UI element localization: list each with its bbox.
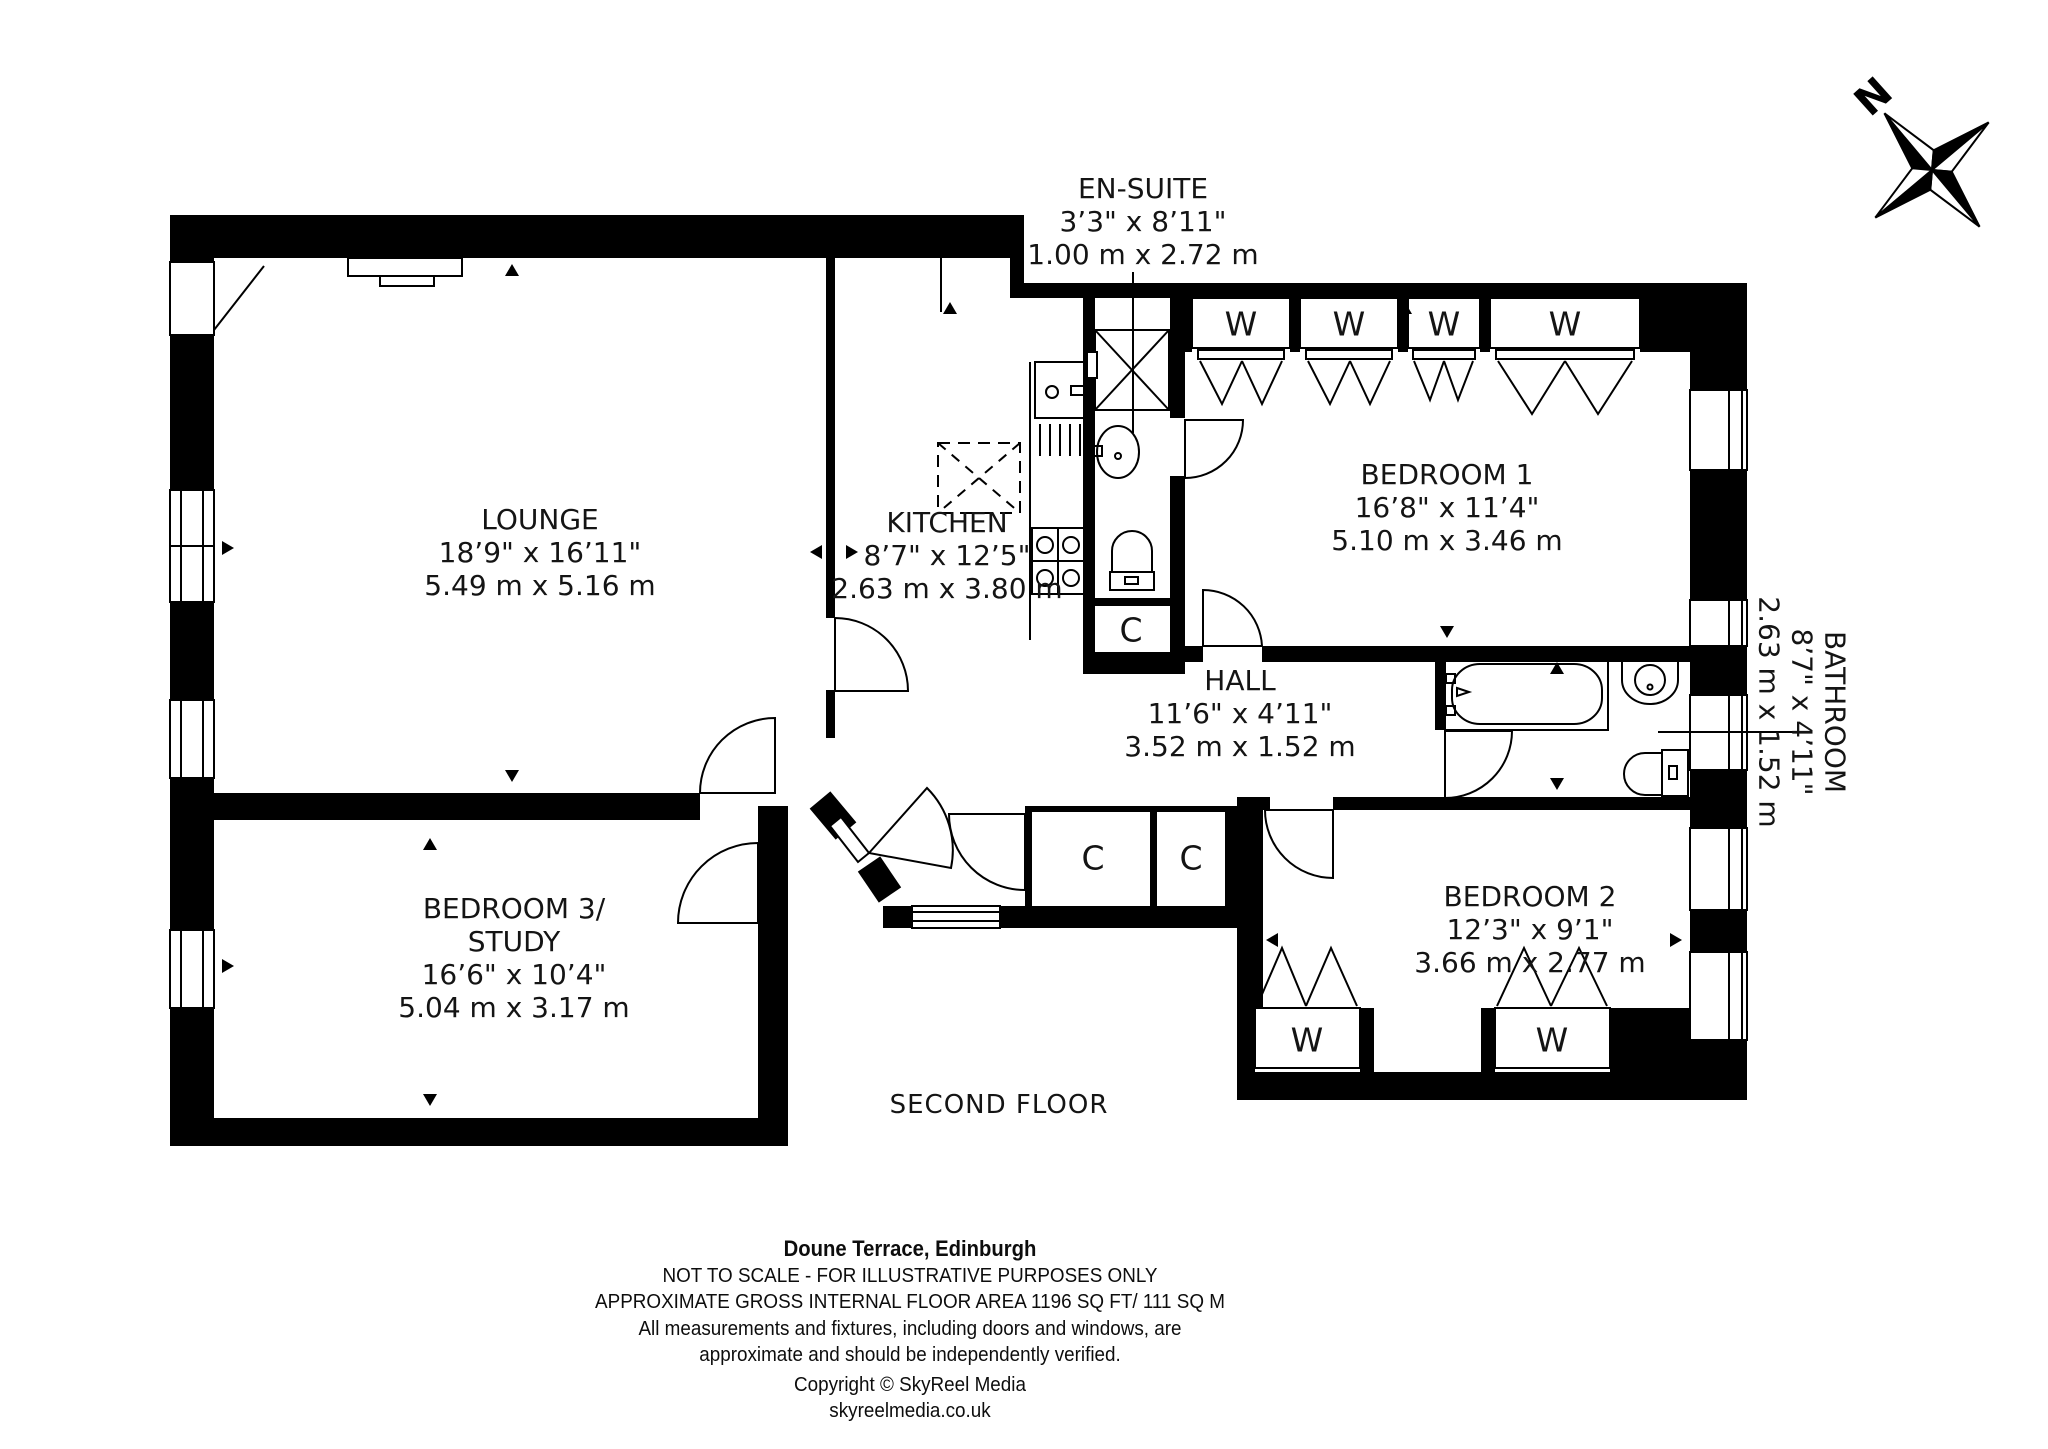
wardrobe-label-4: W xyxy=(1549,305,1582,344)
room-size-metric: 3.66 m x 2.77 m xyxy=(1414,946,1645,979)
wardrobe-label-5: W xyxy=(1291,1021,1324,1060)
room-size-metric: 5.10 m x 3.46 m xyxy=(1331,524,1562,557)
room-size-metric: 3.52 m x 1.52 m xyxy=(1124,730,1355,763)
room-size-imperial: 11’6" x 4’11" xyxy=(1124,697,1355,730)
room-size-imperial: 18’9" x 16’11" xyxy=(424,536,655,569)
website-link: skyreelmedia.co.uk xyxy=(595,1398,1225,1425)
ensuite-fixtures xyxy=(1087,330,1169,590)
room-size-metric: 5.04 m x 3.17 m xyxy=(398,991,629,1024)
room-size-metric: 5.49 m x 5.16 m xyxy=(424,569,655,602)
room-name: LOUNGE xyxy=(424,503,655,536)
footer-line: NOT TO SCALE - FOR ILLUSTRATIVE PURPOSES… xyxy=(595,1263,1225,1290)
room-name: EN-SUITE xyxy=(1027,172,1258,205)
room-label-ensuite: EN-SUITE 3’3" x 8’11" 1.00 m x 2.72 m xyxy=(1027,172,1258,271)
room-size-imperial: 16’8" x 11’4" xyxy=(1331,491,1562,524)
room-label-kitchen: KITCHEN 8’7" x 12’5" 2.63 m x 3.80 m xyxy=(831,506,1062,605)
room-name: BEDROOM 1 xyxy=(1331,458,1562,491)
wardrobe-label-3: W xyxy=(1428,305,1461,344)
room-size-imperial: 8’7" x 12’5" xyxy=(831,539,1062,572)
room-size-metric: 1.00 m x 2.72 m xyxy=(1027,238,1258,271)
room-label-lounge: LOUNGE 18’9" x 16’11" 5.49 m x 5.16 m xyxy=(424,503,655,602)
bathroom-toilet xyxy=(1624,750,1688,796)
compass-icon: N xyxy=(1828,66,2037,275)
floor-plan-drawing: N xyxy=(0,0,2048,1449)
floor-title: SECOND FLOOR xyxy=(890,1090,1109,1120)
footer-line: All measurements and fixtures, including… xyxy=(595,1316,1225,1343)
property-address: Doune Terrace, Edinburgh xyxy=(595,1236,1225,1263)
cupboard-label-hall-1: C xyxy=(1081,839,1104,878)
cupboard-label-ensuite: C xyxy=(1119,611,1142,650)
floor-plan-page: N LOUNGE 18’9" x 16’11" 5.49 m x 5.16 m … xyxy=(0,0,2048,1449)
room-size-imperial: 3’3" x 8’11" xyxy=(1027,205,1258,238)
copyright-line: Copyright © SkyReel Media xyxy=(595,1372,1225,1399)
footer-line: approximate and should be independently … xyxy=(595,1342,1225,1369)
room-size-imperial: 12’3" x 9’1" xyxy=(1414,913,1645,946)
room-size-imperial: 8’7" x 4’11" xyxy=(1786,596,1819,827)
footer-line: APPROXIMATE GROSS INTERNAL FLOOR AREA 11… xyxy=(595,1289,1225,1316)
room-label-bathroom: BATHROOM 8’7" x 4’11" 2.63 m x 1.52 m xyxy=(1753,596,1852,827)
room-label-hall: HALL 11’6" x 4’11" 3.52 m x 1.52 m xyxy=(1124,664,1355,763)
room-size-imperial: 16’6" x 10’4" xyxy=(398,958,629,991)
compass-north-label: N xyxy=(1846,69,1902,126)
room-name: HALL xyxy=(1124,664,1355,697)
room-name: BEDROOM 3/ xyxy=(398,892,629,925)
cupboard-label-hall-2: C xyxy=(1179,839,1202,878)
room-label-bedroom2: BEDROOM 2 12’3" x 9’1" 3.66 m x 2.77 m xyxy=(1414,880,1645,979)
room-label-bedroom1: BEDROOM 1 16’8" x 11’4" 5.10 m x 3.46 m xyxy=(1331,458,1562,557)
chimney-breast xyxy=(348,258,462,286)
room-size-metric: 2.63 m x 1.52 m xyxy=(1753,596,1786,827)
room-label-bedroom3-study: BEDROOM 3/ STUDY 16’6" x 10’4" 5.04 m x … xyxy=(398,892,629,1024)
bathtub xyxy=(1445,658,1608,730)
room-name: KITCHEN xyxy=(831,506,1062,539)
wardrobe-label-1: W xyxy=(1225,305,1258,344)
room-size-metric: 2.63 m x 3.80 m xyxy=(831,572,1062,605)
footer-disclaimer: Doune Terrace, Edinburgh NOT TO SCALE - … xyxy=(595,1236,1225,1425)
wardrobe-label-6: W xyxy=(1536,1021,1569,1060)
room-name2: STUDY xyxy=(398,925,629,958)
room-name: BATHROOM xyxy=(1819,596,1852,827)
wardrobe-label-2: W xyxy=(1333,305,1366,344)
room-name: BEDROOM 2 xyxy=(1414,880,1645,913)
